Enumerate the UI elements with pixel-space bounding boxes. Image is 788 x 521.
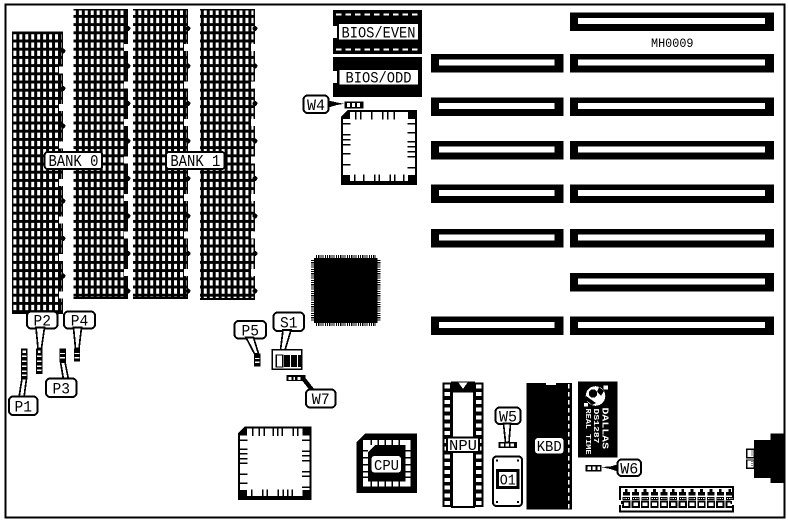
svg-text:P1: P1 [15,398,33,416]
svg-text:KBD: KBD [537,439,562,456]
svg-text:DALLAS: DALLAS [600,408,610,450]
svg-text:BANK 1: BANK 1 [170,152,220,171]
svg-text:DS1287: DS1287 [591,409,599,444]
svg-text:W4: W4 [307,97,325,115]
svg-text:P3: P3 [53,380,71,398]
svg-text:W7: W7 [312,391,330,409]
svg-text:BIOS/EVEN: BIOS/EVEN [342,25,416,43]
svg-text:NPU: NPU [449,438,477,455]
svg-text:O1: O1 [500,473,516,489]
svg-text:BIOS/ODD: BIOS/ODD [346,70,412,88]
svg-text:BANK 0: BANK 0 [48,152,98,171]
svg-text:REAL TIME: REAL TIME [583,409,591,455]
svg-text:W6: W6 [620,460,638,478]
svg-text:MH0009: MH0009 [651,36,694,51]
svg-text:CPU: CPU [374,458,399,475]
